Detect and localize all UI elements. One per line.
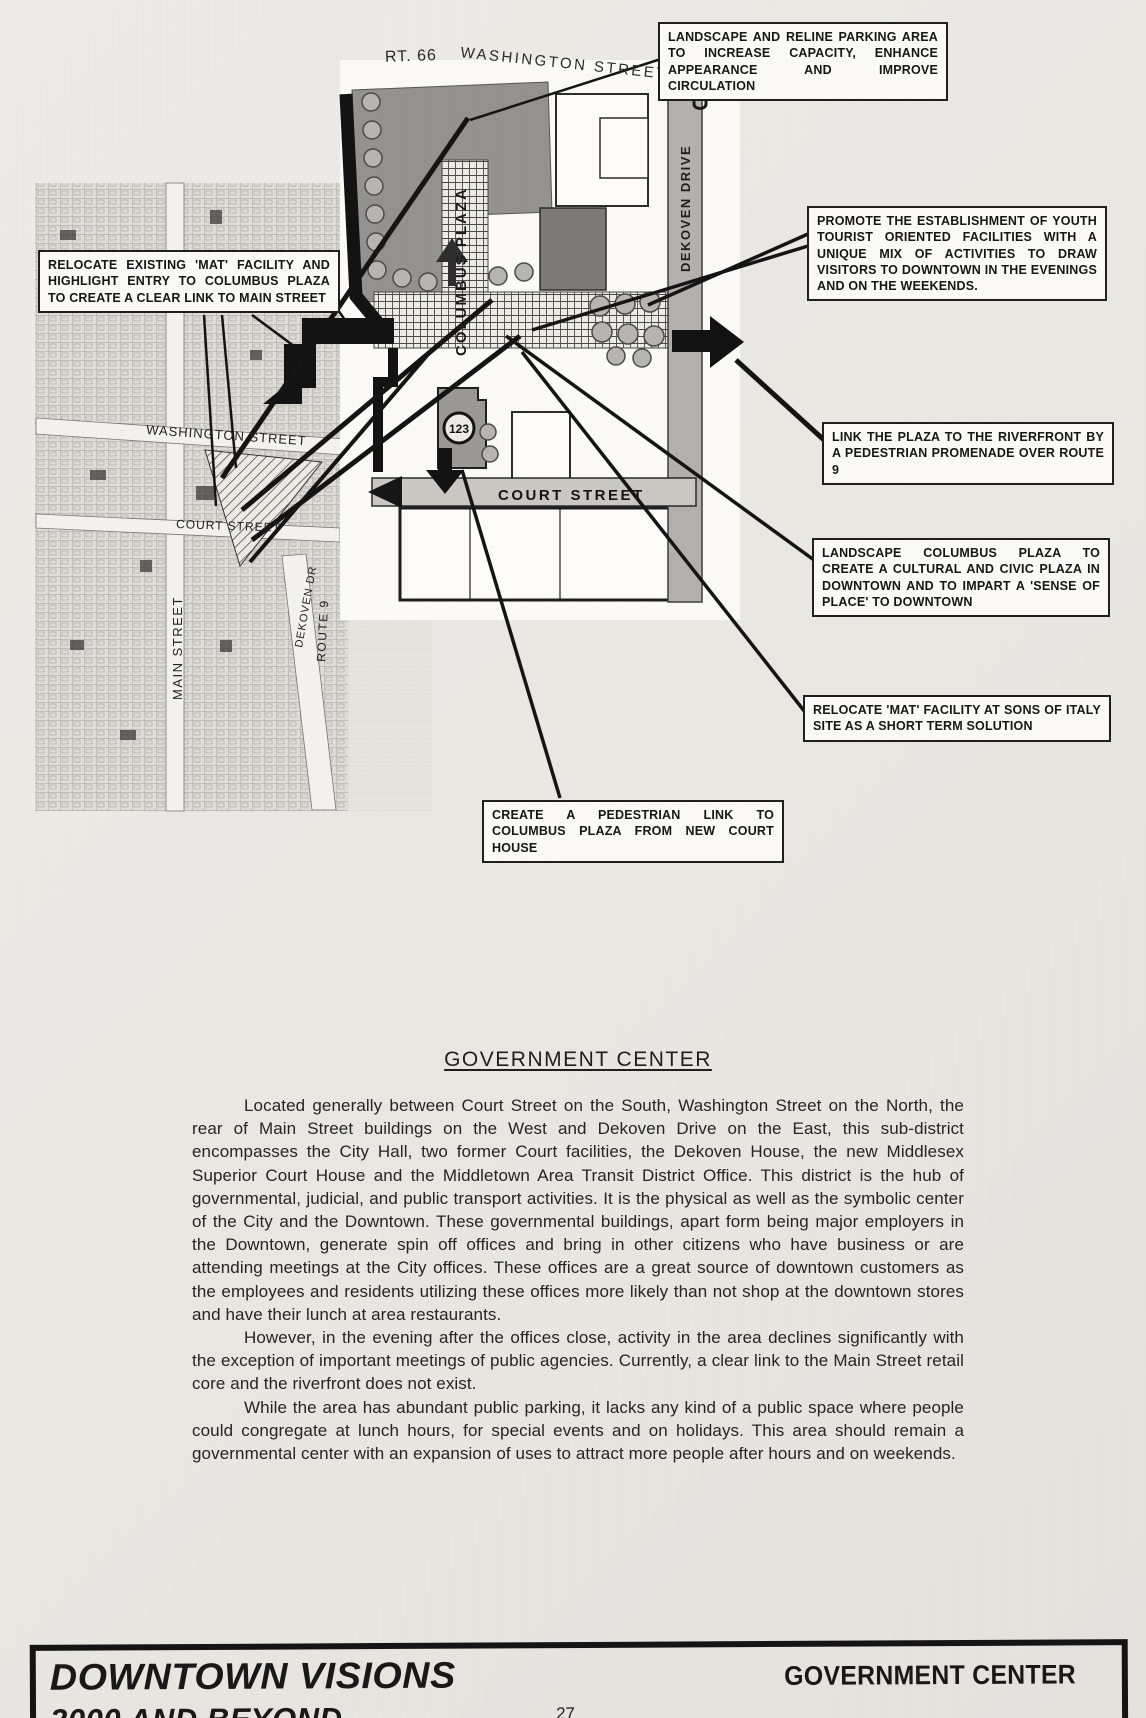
callout-landscape-columbus: LANDSCAPE COLUMBUS PLAZA TO CREATE A CUL… [812, 538, 1110, 617]
scanned-page: 123 [0, 0, 1146, 1718]
main-street-label: MAIN STREET [170, 596, 185, 700]
callout-relocate-existing-mat: RELOCATE EXISTING 'MAT' FACILITY AND HIG… [38, 250, 340, 313]
page-number: 27 [556, 1704, 575, 1718]
callout-pedestrian-link: CREATE A PEDESTRIAN LINK TO COLUMBUS PLA… [482, 800, 784, 863]
report-title: DOWNTOWN VISIONS [50, 1655, 456, 1699]
paragraph-2: However, in the evening after the office… [192, 1326, 964, 1396]
callout-landscape-parking: LANDSCAPE AND RELINE PARKING AREA TO INC… [658, 22, 948, 101]
dekoven-drive-label: DEKOVEN DRIVE [678, 145, 693, 272]
plan-figure: 123 [0, 0, 1146, 970]
rt-66-label: RT. 66 [385, 47, 438, 67]
paragraph-3: While the area has abundant public parki… [192, 1396, 964, 1466]
callout-promote-youth: PROMOTE THE ESTABLISHMENT OF YOUTH TOURI… [807, 206, 1107, 301]
report-subtitle: 2000 AND BEYOND [50, 1701, 343, 1718]
section-heading: GOVERNMENT CENTER [192, 1048, 964, 1072]
callout-link-riverfront: LINK THE PLAZA TO THE RIVERFRONT BY A PE… [822, 422, 1114, 485]
footer-banner: DOWNTOWN VISIONS 2000 AND BEYOND 27 GOVE… [30, 1639, 1129, 1718]
paragraph-1: Located generally between Court Street o… [192, 1094, 964, 1326]
callout-relocate-mat-sons: RELOCATE 'MAT' FACILITY AT SONS OF ITALY… [803, 695, 1111, 742]
columbus-plaza-label: COLUMBUS PLAZA [453, 187, 470, 356]
building-123-label: 123 [449, 422, 469, 436]
footer-section-title: GOVERNMENT CENTER [784, 1659, 1076, 1692]
body-text-section: GOVERNMENT CENTER Located generally betw… [192, 1048, 964, 1465]
court-street-plan-label: COURT STREET [498, 487, 645, 504]
